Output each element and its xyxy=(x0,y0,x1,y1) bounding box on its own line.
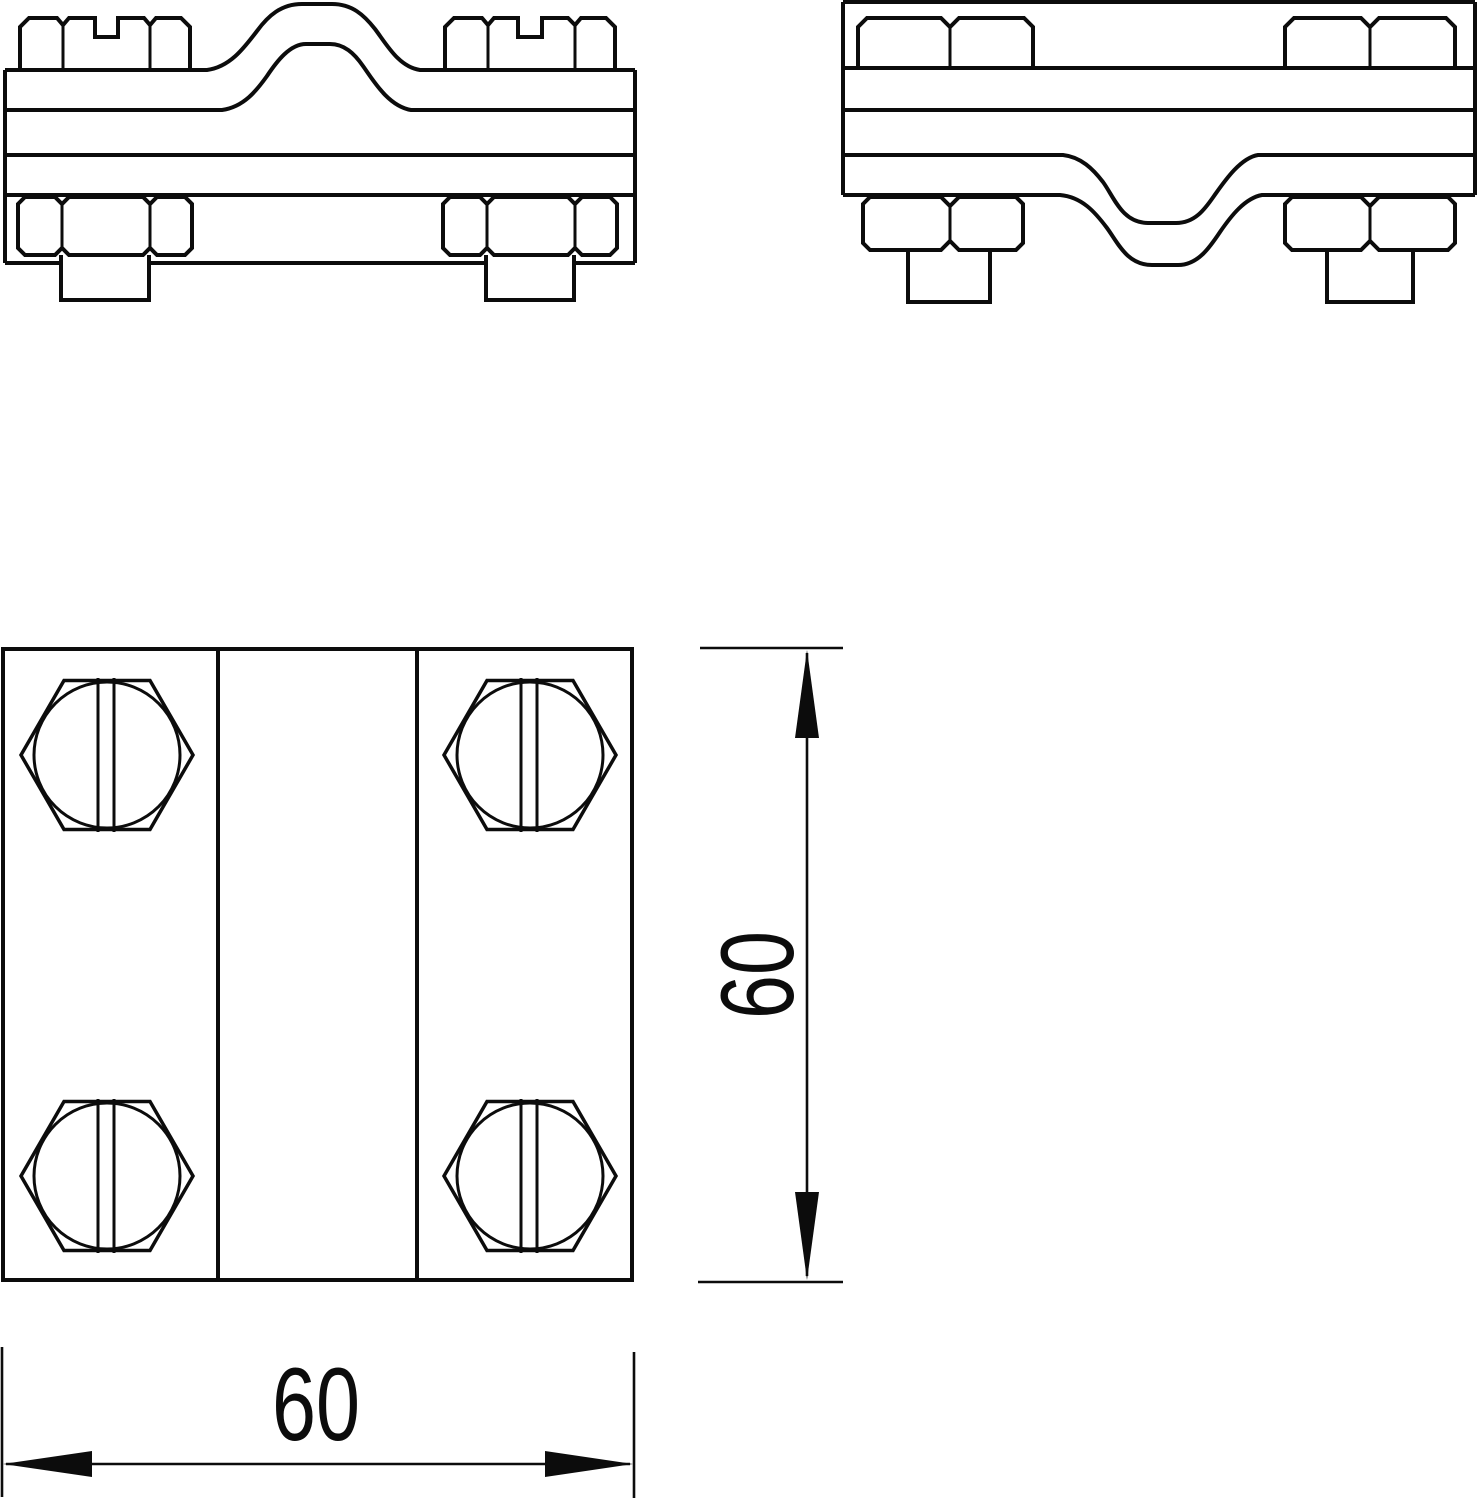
hex-nut-left xyxy=(863,197,1023,250)
screw-slot-lines xyxy=(98,678,114,832)
arrowhead-down xyxy=(795,1192,819,1280)
bolt-shank-right-mask xyxy=(1327,250,1413,302)
hex-nut-left xyxy=(18,197,192,255)
side-view-front xyxy=(5,4,635,300)
arrowhead-right xyxy=(545,1451,633,1477)
screw-slot-lines xyxy=(521,1099,537,1253)
bolt-head-circle xyxy=(34,682,180,828)
side-view-lateral xyxy=(843,2,1475,302)
plan-bolt-bottom-right xyxy=(444,1099,616,1253)
horizontal-dimension: 60 xyxy=(2,1347,634,1498)
screw-slot-lines xyxy=(98,1099,114,1253)
horizontal-dimension-label: 60 xyxy=(272,1347,360,1463)
drawing-sheet: 60 60 xyxy=(0,0,1477,1500)
technical-drawing-canvas: 60 60 xyxy=(0,0,1477,1500)
slotted-bolt-head-left xyxy=(20,18,190,70)
plan-bolt-top-right xyxy=(444,678,616,832)
hex-head-outline xyxy=(444,681,616,830)
screw-slot-lines xyxy=(521,678,537,832)
slotted-bolt-head-right xyxy=(445,18,615,70)
bolt-shank-left-mask xyxy=(61,255,149,300)
arrowhead-up xyxy=(795,650,819,738)
bolt-head-circle xyxy=(457,682,603,828)
hex-head-outline xyxy=(21,1102,193,1251)
plan-view xyxy=(3,649,632,1280)
bolt-head-circle xyxy=(457,1103,603,1249)
hex-head-outline xyxy=(21,681,193,830)
bolt-head-left xyxy=(858,18,1033,68)
bolt-head-circle xyxy=(34,1103,180,1249)
bolt-shank-right-mask xyxy=(486,255,574,300)
hex-nut-right xyxy=(443,197,617,255)
hex-head-outline xyxy=(444,1102,616,1251)
plan-bolt-top-left xyxy=(21,678,193,832)
vertical-dimension: 60 xyxy=(698,648,843,1282)
plan-bolt-bottom-left xyxy=(21,1099,193,1253)
bolt-shank-left-mask xyxy=(908,250,990,302)
arrowhead-left xyxy=(3,1451,92,1477)
vertical-dimension-label: 60 xyxy=(700,931,816,1019)
